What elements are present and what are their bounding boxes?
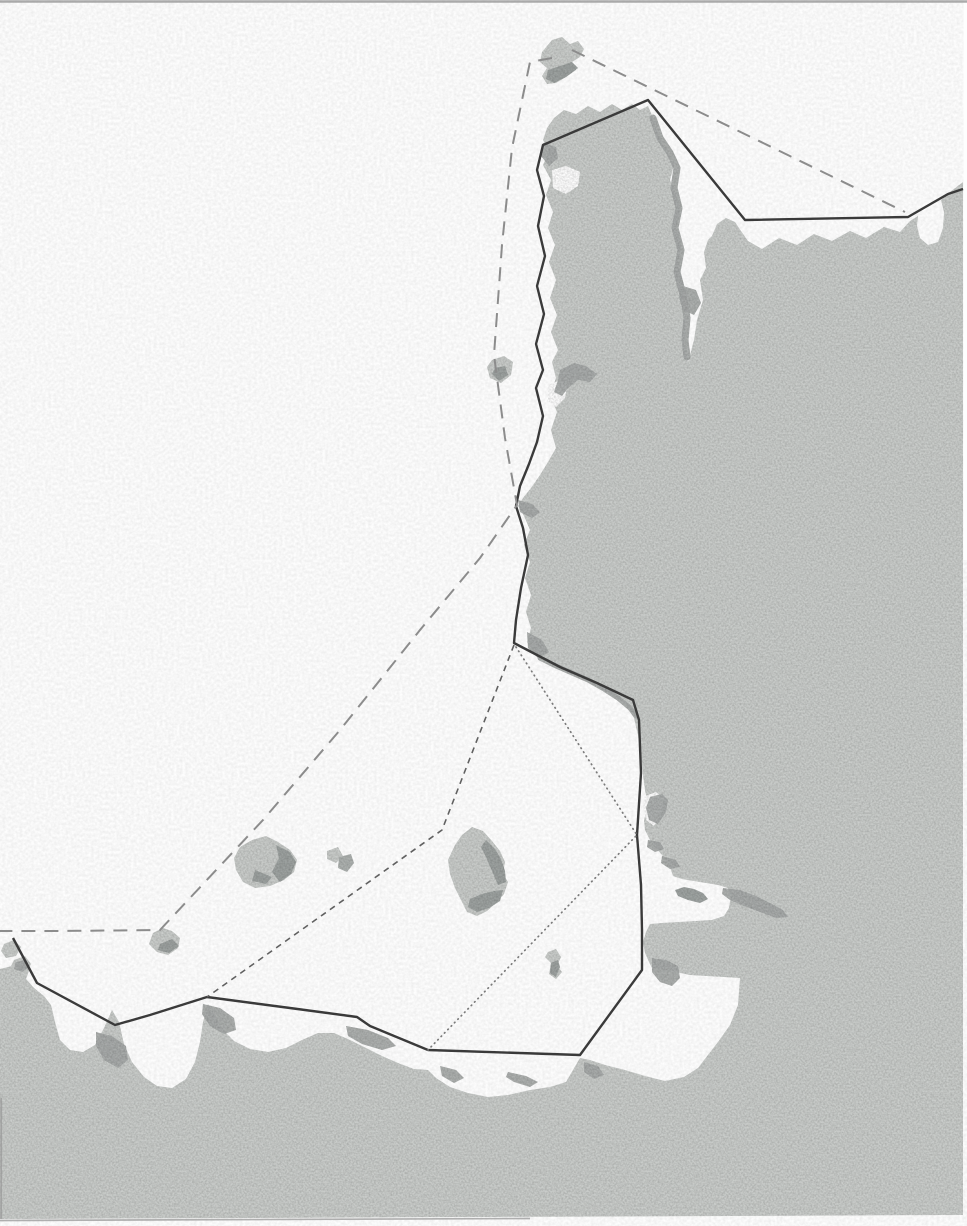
page-right-margin <box>964 0 967 560</box>
scanned-maritime-boundary-map <box>0 0 967 1226</box>
map-canvas <box>0 0 967 1226</box>
